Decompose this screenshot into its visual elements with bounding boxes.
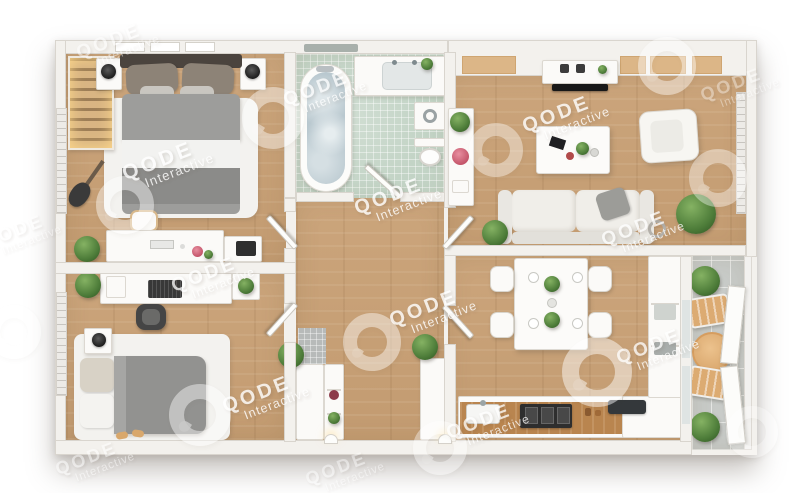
stove-burner-3 [557, 407, 570, 424]
bed2-pillow-white [80, 394, 114, 428]
watermark-logo-ring [0, 305, 41, 359]
wall-bathroom-bottom-b [400, 192, 448, 202]
hall-sconce-1 [324, 434, 338, 444]
hall-console-box [452, 180, 469, 193]
desk1-keyboard [150, 240, 174, 249]
dining-chair-4 [588, 312, 612, 338]
wall-bathroom-bottom-a [296, 192, 354, 202]
shelf-item-1 [654, 304, 676, 320]
coffee-table [536, 126, 610, 174]
balcony-outer-edge [744, 256, 752, 450]
radiator-bedroom2 [56, 292, 67, 396]
hall-console-plant [450, 112, 470, 132]
wall-hall-left-c [284, 342, 296, 442]
radiator-bedroom1 [56, 108, 67, 214]
wall-bedroom1-bathroom [284, 52, 296, 198]
dark-countertop-sink [608, 400, 646, 414]
bedroom1-plant [74, 236, 100, 262]
shelf-item-2 [654, 342, 676, 355]
speaker-right [245, 64, 260, 79]
wall-hall-left-a [284, 198, 296, 212]
desk2-chair-seat [142, 309, 160, 325]
living-window-sill-3 [650, 56, 686, 74]
desk1-plant [204, 250, 213, 259]
stove-burner-2 [541, 407, 554, 424]
dining-chair-1 [490, 266, 514, 292]
place-setting-3 [572, 272, 583, 283]
bedroom2-plant [75, 272, 101, 298]
bathroom-vent-shelf [304, 44, 358, 52]
washer-door [423, 109, 437, 123]
watermark-text: QODEInteractive [0, 208, 64, 262]
wall-bedroom-divider [55, 262, 296, 274]
wall-hall-right-c [444, 344, 456, 442]
bed2-blanket [114, 356, 206, 434]
desk2-plant [238, 278, 254, 294]
stove-burner-1 [525, 407, 538, 424]
watermark-word: Interactive [324, 461, 387, 493]
vanity-plant [421, 58, 433, 70]
hall-cabinet-left [296, 364, 324, 440]
desk2-chair [136, 304, 166, 330]
desk1-mouse [180, 244, 185, 249]
armchair [638, 108, 699, 164]
living-plant-large [676, 194, 716, 234]
kitchen-wall-cabinet-column [648, 256, 682, 398]
coffee-table-flowers [566, 152, 574, 160]
bedroom1-window-3 [185, 42, 215, 52]
radiator-living [736, 92, 746, 214]
spice-jar-1 [585, 408, 591, 416]
desk1-chair [130, 210, 158, 232]
toilet-bowl [419, 148, 441, 166]
floor-deco-ring [648, 220, 666, 238]
bedroom1-window-1 [115, 42, 145, 52]
coffee-table-plant [576, 142, 589, 155]
hall-console-flowers [452, 148, 469, 165]
vanity-tap1 [392, 60, 397, 65]
hall-sconce-2 [438, 434, 452, 444]
bed1-duvet [122, 94, 240, 140]
vanity-tap2 [412, 60, 417, 65]
hall-cabinet-right [420, 358, 446, 440]
desk2-monitor [106, 276, 126, 298]
balcony-glass-2 [682, 366, 690, 424]
living-window-sill-4 [692, 56, 722, 74]
wall-right-upper [746, 40, 757, 257]
bed1-throw [122, 168, 240, 204]
coffee-table-dish [590, 148, 599, 157]
table-plant-1 [544, 276, 560, 292]
dining-chair-3 [588, 266, 612, 292]
shelf-flowers [329, 390, 339, 400]
wall-hall-right-b [444, 248, 456, 306]
speaker2 [92, 333, 106, 347]
tv-console-plant [598, 65, 607, 74]
bathtub-faucet [316, 66, 334, 72]
balcony-glass-1 [682, 300, 690, 358]
living-plant-small [482, 220, 508, 246]
shelf-plant [328, 412, 340, 424]
bed2-blanket-fold [114, 356, 126, 434]
place-setting-1 [528, 272, 539, 283]
hall-plant-right [412, 334, 438, 360]
wall-living-dining-divider [444, 245, 746, 256]
slipper-2 [132, 429, 145, 438]
speaker-left [101, 64, 116, 79]
watermark-brand: QODE [0, 208, 60, 252]
living-window-sill-1 [462, 56, 516, 74]
floor-plan-scene: QODEInteractiveQODEInteractiveQODEIntera… [0, 0, 800, 493]
sofa-back [512, 232, 640, 244]
balcony-bush-bottom [690, 412, 720, 442]
toilet-tank [414, 138, 446, 147]
tv-speaker-1 [560, 64, 569, 73]
wall-hall-left-b [284, 248, 296, 304]
living-window-sill-2 [620, 56, 646, 74]
table-bowl [547, 298, 557, 308]
bed1-sheet-fold [122, 140, 240, 168]
kitchen-faucet [480, 400, 486, 406]
bed2-pillow-beige [80, 358, 114, 392]
armchair-cushion [650, 119, 684, 153]
sofa-seat-left [512, 190, 576, 232]
place-setting-4 [572, 318, 583, 329]
place-setting-2 [528, 318, 539, 329]
bedroom1-window-2 [150, 42, 180, 52]
wall-top-left [55, 40, 448, 54]
dining-chair-2 [490, 312, 514, 338]
desk2-laptop [148, 280, 182, 298]
table-plant-2 [544, 312, 560, 328]
balcony-bush-top [690, 266, 720, 296]
printer [236, 241, 256, 256]
watermark-word: Interactive [74, 451, 137, 484]
tv-speaker-2 [576, 64, 585, 73]
bathtub-water [307, 72, 345, 184]
kitchen-sink [466, 404, 500, 424]
spice-jar-2 [595, 410, 601, 416]
tv-screen [552, 84, 608, 91]
wall-bottom [55, 440, 692, 455]
hall-open-shelf [324, 364, 344, 440]
desk1-flowers [192, 246, 203, 257]
